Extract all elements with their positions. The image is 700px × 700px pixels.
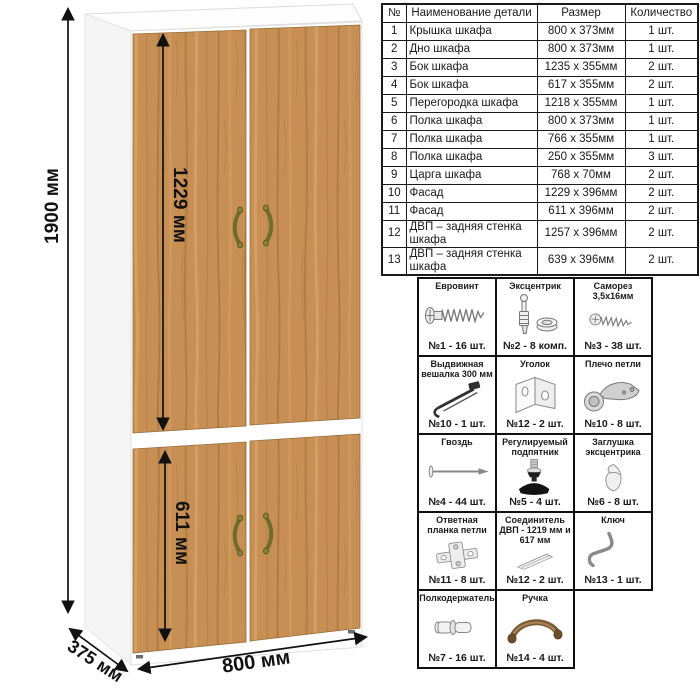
- part-number: 9: [382, 167, 406, 185]
- table-row: 8 Полка шкафа 250 x 355мм 3 шт.: [382, 149, 698, 167]
- cabinet-side-panel: [85, 14, 131, 665]
- part-qty: 2 шт.: [625, 59, 698, 77]
- part-name: Бок шкафа: [406, 77, 537, 95]
- hardware-icon: [577, 457, 649, 496]
- table-row: 12 ДВП – задняя стенка шкафа 1257 x 396м…: [382, 221, 698, 248]
- hardware-count: №12 - 2 шт.: [506, 418, 563, 430]
- hardware-glyph: [508, 622, 562, 643]
- hardware-item: Полкодержатель №7 - 16 шт.: [417, 589, 497, 669]
- table-row: 6 Полка шкафа 800 x 373мм 1 шт.: [382, 113, 698, 131]
- table-row: 4 Бок шкафа 617 x 355мм 2 шт.: [382, 77, 698, 95]
- hardware-glyph: [426, 308, 485, 324]
- hardware-name: Евровинт: [435, 281, 478, 291]
- part-number: 2: [382, 41, 406, 59]
- hardware-glyph: [606, 465, 621, 491]
- hardware-item: Соединитель ДВП - 1219 мм и 617 мм №12 -…: [495, 511, 575, 591]
- part-size: 250 x 355мм: [537, 149, 625, 167]
- part-qty: 2 шт.: [625, 185, 698, 203]
- hardware-icon: [421, 291, 493, 340]
- hardware-glyph: [585, 383, 640, 411]
- hardware-icon: [421, 379, 493, 418]
- hardware-item: Евровинт №1 - 16 шт.: [417, 277, 497, 357]
- part-size: 1235 x 355мм: [537, 59, 625, 77]
- part-size: 639 x 396мм: [537, 247, 625, 274]
- part-number: 3: [382, 59, 406, 77]
- hardware-icon: [421, 535, 493, 574]
- part-qty: 1 шт.: [625, 113, 698, 131]
- part-name: Бок шкафа: [406, 59, 537, 77]
- hardware-glyph: [435, 621, 471, 635]
- table-row: 5 Перегородка шкафа 1218 x 355мм 1 шт.: [382, 95, 698, 113]
- hardware-item: Гвоздь №4 - 44 шт.: [417, 433, 497, 513]
- hardware-item: Ключ №13 - 1 шт.: [573, 511, 653, 591]
- dimension-height-label: 1900 мм: [42, 168, 63, 244]
- hardware-item: Заглушка эксцентрика №6 - 8 шт.: [573, 433, 653, 513]
- part-name: Крышка шкафа: [406, 23, 537, 41]
- part-size: 766 x 355мм: [537, 131, 625, 149]
- part-number: 6: [382, 113, 406, 131]
- parts-table: № Наименование детали Размер Количество …: [381, 3, 699, 276]
- lower-right-door: [250, 434, 360, 641]
- hardware-icon: [577, 369, 649, 418]
- part-size: 800 x 373мм: [537, 113, 625, 131]
- col-header-qty: Количество: [625, 4, 698, 23]
- col-header-number: №: [382, 4, 406, 23]
- hardware-item: Ответная планка петли №11 - 8 шт.: [417, 511, 497, 591]
- part-name: Полка шкафа: [406, 113, 537, 131]
- hardware-name: Уголок: [520, 359, 550, 369]
- hardware-name: Гвоздь: [441, 437, 472, 447]
- hardware-item: Регулируемый подпятник №5 - 4 шт.: [495, 433, 575, 513]
- parts-table-header-row: № Наименование детали Размер Количество: [382, 4, 698, 23]
- hardware-glyph: [520, 295, 558, 334]
- table-row: 7 Полка шкафа 766 x 355мм 1 шт.: [382, 131, 698, 149]
- part-qty: 2 шт.: [625, 221, 698, 248]
- table-row: 3 Бок шкафа 1235 x 355мм 2 шт.: [382, 59, 698, 77]
- part-qty: 2 шт.: [625, 77, 698, 95]
- hardware-item: Саморез 3,5x16мм №3 - 38 шт.: [573, 277, 653, 357]
- hardware-count: №10 - 8 шт.: [584, 418, 641, 430]
- cabinet-foot: [136, 655, 143, 659]
- hardware-count: №10 - 1 шт.: [428, 418, 485, 430]
- part-name: Фасад: [406, 185, 537, 203]
- hardware-name: Регулируемый подпятник: [498, 437, 572, 457]
- hardware-glyph: [435, 381, 481, 417]
- hardware-count: №11 - 8 шт.: [429, 574, 486, 586]
- hardware-grid: Евровинт №1 - 16 шт. Эксцентрик №2 - 8 к…: [417, 277, 663, 667]
- hardware-glyph: [435, 540, 479, 571]
- part-number: 5: [382, 95, 406, 113]
- assembly-instruction-page: 1900 мм 1229 мм 611 мм 800 мм 375 мм №: [0, 0, 700, 700]
- hardware-name: Плечо петли: [585, 359, 641, 369]
- part-number: 7: [382, 131, 406, 149]
- col-header-size: Размер: [537, 4, 625, 23]
- hardware-glyph: [516, 378, 555, 413]
- hardware-name: Эксцентрик: [509, 281, 561, 291]
- hardware-count: №6 - 8 шт.: [587, 496, 639, 508]
- part-name: Царга шкафа: [406, 167, 537, 185]
- hardware-icon: [577, 525, 649, 574]
- part-number: 4: [382, 77, 406, 95]
- part-qty: 1 шт.: [625, 95, 698, 113]
- hardware-count: №3 - 38 шт.: [584, 340, 641, 352]
- hardware-name: Полкодержатель: [419, 593, 494, 603]
- part-name: Полка шкафа: [406, 131, 537, 149]
- part-qty: 2 шт.: [625, 167, 698, 185]
- col-header-name: Наименование детали: [406, 4, 537, 23]
- hardware-glyph: [519, 460, 549, 495]
- hardware-name: Ответная планка петли: [420, 515, 494, 535]
- part-number: 13: [382, 247, 406, 274]
- hardware-icon: [499, 545, 571, 574]
- hardware-glyph: [589, 534, 612, 566]
- hardware-item: Эксцентрик №2 - 8 комп.: [495, 277, 575, 357]
- part-qty: 2 шт.: [625, 203, 698, 221]
- hardware-icon: [421, 603, 493, 652]
- part-size: 800 x 373мм: [537, 23, 625, 41]
- hardware-item: Выдвижная вешалка 300 мм №10 - 1 шт.: [417, 355, 497, 435]
- hardware-count: №5 - 4 шт.: [509, 496, 561, 508]
- part-name: Дно шкафа: [406, 41, 537, 59]
- part-number: 10: [382, 185, 406, 203]
- hardware-count: №12 - 2 шт.: [506, 574, 563, 586]
- hardware-count: №1 - 16 шт.: [428, 340, 485, 352]
- hardware-count: №4 - 44 шт.: [428, 496, 485, 508]
- part-number: 12: [382, 221, 406, 248]
- hardware-count: №14 - 4 шт.: [506, 652, 563, 664]
- part-name: ДВП – задняя стенка шкафа: [406, 247, 537, 274]
- part-qty: 2 шт.: [625, 247, 698, 274]
- hardware-name: Ручка: [522, 593, 548, 603]
- table-row: 9 Царга шкафа 768 x 70мм 2 шт.: [382, 167, 698, 185]
- table-row: 1 Крышка шкафа 800 x 373мм 1 шт.: [382, 23, 698, 41]
- hardware-name: Ключ: [601, 515, 625, 525]
- part-size: 617 x 355мм: [537, 77, 625, 95]
- hardware-icon: [499, 603, 571, 652]
- hardware-icon: [421, 447, 493, 496]
- hardware-name: Заглушка эксцентрика: [576, 437, 650, 457]
- hardware-name: Саморез 3,5x16мм: [576, 281, 650, 301]
- hardware-item: Уголок №12 - 2 шт.: [495, 355, 575, 435]
- upper-right-door: [250, 25, 360, 425]
- hardware-item: Ручка №14 - 4 шт.: [495, 589, 575, 669]
- hardware-count: №7 - 16 шт.: [428, 652, 485, 664]
- cabinet-foot: [348, 630, 355, 634]
- hardware-glyph: [429, 466, 487, 477]
- hardware-count: №13 - 1 шт.: [584, 574, 641, 586]
- hardware-name: Выдвижная вешалка 300 мм: [420, 359, 494, 379]
- table-row: 11 Фасад 611 x 396мм 2 шт.: [382, 203, 698, 221]
- table-row: 2 Дно шкафа 800 x 373мм 1 шт.: [382, 41, 698, 59]
- hardware-icon: [577, 301, 649, 340]
- dimension-lower-door-label: 611 мм: [171, 501, 192, 565]
- dimension-height: 1900 мм: [42, 9, 68, 612]
- hardware-icon: [499, 457, 571, 496]
- part-name: ДВП – задняя стенка шкафа: [406, 221, 537, 248]
- part-name: Перегородка шкафа: [406, 95, 537, 113]
- hardware-glyph: [589, 314, 632, 329]
- table-row: 13 ДВП – задняя стенка шкафа 639 x 396мм…: [382, 247, 698, 274]
- part-number: 11: [382, 203, 406, 221]
- part-number: 1: [382, 23, 406, 41]
- part-size: 1229 x 396мм: [537, 185, 625, 203]
- hardware-glyph: [517, 554, 552, 570]
- part-qty: 1 шт.: [625, 41, 698, 59]
- hardware-name: Соединитель ДВП - 1219 мм и 617 мм: [498, 515, 572, 545]
- part-qty: 1 шт.: [625, 131, 698, 149]
- part-size: 800 x 373мм: [537, 41, 625, 59]
- part-qty: 1 шт.: [625, 23, 698, 41]
- part-size: 768 x 70мм: [537, 167, 625, 185]
- hardware-count: №2 - 8 комп.: [503, 340, 567, 352]
- hardware-icon: [499, 291, 571, 340]
- part-name: Полка шкафа: [406, 149, 537, 167]
- dimension-upper-door-label: 1229 мм: [169, 167, 190, 243]
- part-number: 8: [382, 149, 406, 167]
- table-row: 10 Фасад 1229 x 396мм 2 шт.: [382, 185, 698, 203]
- part-size: 1257 x 396мм: [537, 221, 625, 248]
- part-size: 611 x 396мм: [537, 203, 625, 221]
- part-qty: 3 шт.: [625, 149, 698, 167]
- part-name: Фасад: [406, 203, 537, 221]
- part-size: 1218 x 355мм: [537, 95, 625, 113]
- wardrobe-diagram: 1900 мм 1229 мм 611 мм 800 мм 375 мм: [0, 0, 410, 700]
- hardware-icon: [499, 369, 571, 418]
- hardware-item: Плечо петли №10 - 8 шт.: [573, 355, 653, 435]
